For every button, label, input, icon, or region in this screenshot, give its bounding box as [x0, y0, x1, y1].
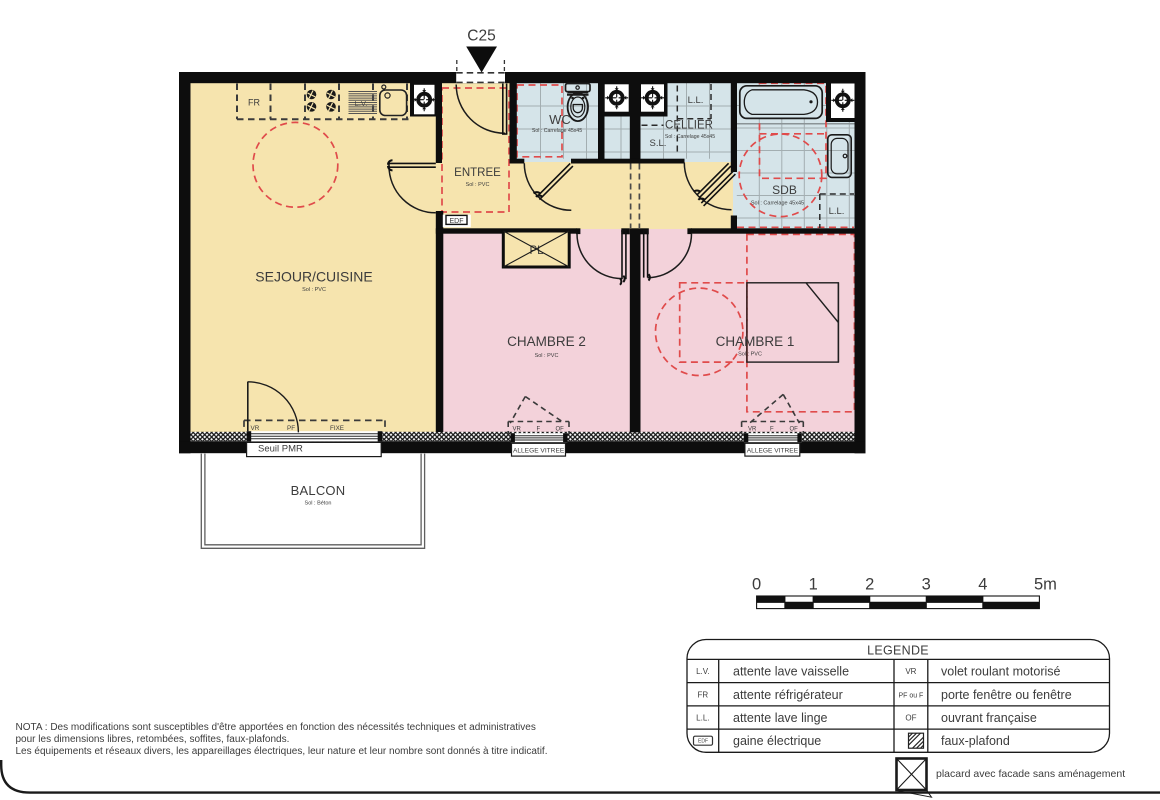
svg-text:Sol : Carrelage 45x45: Sol : Carrelage 45x45: [751, 201, 804, 207]
svg-text:Sol : PVC: Sol : PVC: [302, 287, 326, 293]
svg-text:CELLIER: CELLIER: [665, 120, 713, 132]
svg-text:NOTA : Des modifications sont: NOTA : Des modifications sont susceptibl…: [16, 722, 536, 733]
svg-text:porte fenêtre ou fenêtre: porte fenêtre ou fenêtre: [941, 688, 1072, 702]
svg-text:L.L.: L.L.: [688, 95, 704, 106]
svg-text:FR: FR: [248, 98, 260, 108]
svg-text:LEGENDE: LEGENDE: [867, 644, 929, 658]
svg-text:Les équipements et réseaux div: Les équipements et réseaux divers, les a…: [16, 746, 548, 757]
svg-text:VR: VR: [251, 425, 260, 432]
svg-text:attente réfrigérateur: attente réfrigérateur: [733, 688, 843, 702]
svg-text:placard avec facade sans aména: placard avec facade sans aménagement: [936, 768, 1125, 780]
svg-text:1: 1: [809, 576, 818, 594]
svg-text:ouvrant française: ouvrant française: [941, 711, 1037, 725]
svg-text:BALCON: BALCON: [291, 483, 346, 498]
svg-text:EDF: EDF: [698, 739, 708, 745]
svg-text:CHAMBRE 1: CHAMBRE 1: [716, 334, 795, 349]
svg-text:L.L.: L.L.: [696, 714, 709, 723]
svg-text:faux-plafond: faux-plafond: [941, 734, 1010, 748]
svg-text:WC: WC: [549, 112, 571, 127]
svg-text:FIXE: FIXE: [330, 425, 344, 432]
svg-text:L.V.: L.V.: [696, 667, 710, 676]
svg-text:gaine électrique: gaine électrique: [733, 734, 821, 748]
svg-text:OF: OF: [790, 427, 799, 433]
svg-text:0: 0: [752, 576, 761, 594]
svg-text:Sol : Béton: Sol : Béton: [305, 501, 332, 507]
svg-text:pour les dimensions libres, re: pour les dimensions libres, retombées, s…: [16, 734, 290, 745]
svg-text:Sol : PVC: Sol : PVC: [738, 352, 762, 358]
svg-text:Sol : PVC: Sol : PVC: [466, 182, 490, 188]
svg-text:3: 3: [922, 576, 931, 594]
svg-text:SDB: SDB: [772, 183, 797, 197]
svg-text:VR: VR: [905, 667, 916, 676]
svg-text:L.V.: L.V.: [355, 99, 368, 108]
svg-text:ENTREE: ENTREE: [454, 167, 501, 179]
svg-text:Sol : Carrelage 45x45: Sol : Carrelage 45x45: [665, 134, 715, 140]
svg-text:volet roulant motorisé: volet roulant motorisé: [941, 665, 1061, 679]
svg-text:Sol : PVC: Sol : PVC: [535, 353, 559, 359]
svg-text:OF: OF: [905, 714, 916, 723]
svg-text:CHAMBRE 2: CHAMBRE 2: [507, 334, 586, 349]
svg-text:Sol : Carrelage 45x45: Sol : Carrelage 45x45: [532, 128, 582, 134]
svg-text:2: 2: [865, 576, 874, 594]
svg-text:4: 4: [978, 576, 987, 594]
svg-text:OF: OF: [556, 427, 565, 433]
svg-text:C25: C25: [467, 28, 495, 45]
svg-text:L.L.: L.L.: [829, 206, 845, 217]
svg-text:Seuil PMR: Seuil PMR: [258, 443, 303, 454]
svg-text:EDF: EDF: [450, 218, 464, 225]
svg-text:ALLEGE VITREE: ALLEGE VITREE: [747, 447, 799, 454]
svg-text:attente lave vaisselle: attente lave vaisselle: [733, 665, 849, 679]
svg-text:5m: 5m: [1034, 576, 1057, 594]
svg-text:F: F: [537, 427, 541, 433]
svg-text:VR: VR: [513, 427, 522, 433]
svg-text:FR: FR: [698, 690, 709, 699]
svg-text:SEJOUR/CUISINE: SEJOUR/CUISINE: [255, 269, 372, 285]
svg-text:F: F: [770, 427, 774, 433]
svg-text:PF: PF: [287, 425, 295, 432]
svg-text:PF ou F: PF ou F: [898, 692, 923, 699]
svg-text:S.L.: S.L.: [650, 138, 667, 149]
svg-text:VR: VR: [748, 427, 757, 433]
svg-text:attente lave linge: attente lave linge: [733, 711, 828, 725]
svg-text:ALLEGE VITREE: ALLEGE VITREE: [513, 447, 565, 454]
